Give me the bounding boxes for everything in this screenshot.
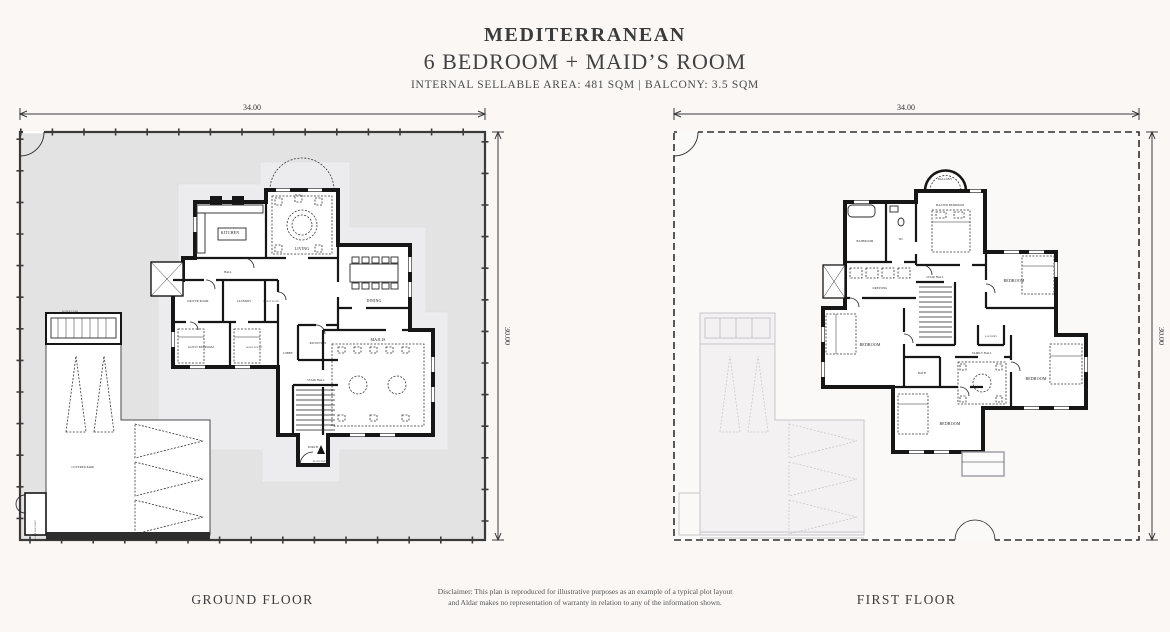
room-label-laundry: LAUNDRY [237, 300, 252, 303]
ground-height-dim: 30.00 [503, 327, 510, 345]
room-label-first-stair: STAIR HALL [926, 276, 944, 279]
room-label-hall: HALL [224, 271, 232, 274]
first-width-dim: 34.00 [897, 103, 915, 112]
room-label-bedroom-a: BEDROOM [1003, 278, 1024, 283]
room-label-bath: BATH [918, 372, 926, 375]
room-label-living: LIVING [295, 246, 310, 251]
room-label-majlis: MAJLIS [371, 337, 386, 342]
room-label-covered-park: COVERED PARK [72, 466, 95, 469]
disclaimer: Disclaimer: This plan is reproduced for … [375, 587, 795, 608]
disclaimer-line1: Disclaimer: This plan is reproduced for … [375, 587, 795, 598]
title-block: MEDITERRANEAN 6 BEDROOM + MAID’S ROOM IN… [411, 24, 759, 91]
first-dim-top: 34.00 [674, 103, 1139, 120]
plan-title: MEDITERRANEAN [411, 24, 759, 47]
floorplan-sheet: { "header": { "title": "MEDITERRANEAN", … [0, 0, 1170, 632]
room-label-dressing: DRESSING [873, 287, 888, 290]
first-floor-plan: 34.00 30.00 [662, 100, 1164, 552]
room-label-lobby: LOBBY [283, 352, 293, 355]
room-label-master: MASTER BEDROOM [936, 204, 964, 207]
first-floor-panel: 34.00 30.00 [662, 100, 1170, 600]
room-label-main-entry: MAIN ENTRY [313, 460, 329, 463]
plan-subtitle: 6 BEDROOM + MAID’S ROOM [411, 49, 759, 75]
room-label-dining: DINING [366, 298, 381, 303]
room-label-kitchen: KITCHEN [221, 230, 240, 235]
room-label-garbage: GARBAGE UNIT [34, 520, 37, 540]
ground-floor-plan: 34.00 30.00 WATER TANK [8, 100, 510, 552]
ground-plot: WATER TANK COVERED PARK GARBAGE UNIT [16, 132, 485, 540]
ground-floor-panel: 34.00 30.00 WATER TANK [8, 100, 518, 600]
room-label-bathroom: BATHROOM [857, 240, 874, 243]
terrace-below [962, 452, 1004, 476]
room-label-family: FAMILY HALL [972, 352, 992, 355]
room-label-bedroom-c: BEDROOM [939, 421, 960, 426]
ground-width-dim: 34.00 [243, 103, 261, 112]
room-label-balcony: BALCONY [938, 178, 953, 181]
room-label-first-laundry: LAUNDRY [985, 335, 998, 338]
room-label-bedroom-d: BEDROOM [1025, 376, 1046, 381]
room-label-reception: RECEPTION [310, 342, 327, 345]
plan-area-line: INTERNAL SELLABLE AREA: 481 SQM | BALCON… [411, 79, 759, 91]
room-label-guest-bath: GUEST BATH [263, 300, 279, 303]
first-dim-right: 30.00 [1146, 132, 1164, 540]
ground-dim-top: 34.00 [20, 103, 485, 120]
room-label-porch: PORCH [308, 446, 318, 449]
room-label-wc: WC [899, 238, 904, 241]
disclaimer-line2: and Aldar makes no representation of war… [375, 598, 795, 609]
first-plot: BALCONY MASTER BEDROOM BATHROOM WC DRESS… [674, 132, 1139, 540]
first-height-dim: 30.00 [1157, 327, 1164, 345]
room-label-guest-bedroom: GUEST BEDROOM [188, 346, 214, 349]
ground-dim-right: 30.00 [492, 132, 510, 540]
driveway-entry [46, 532, 210, 540]
room-label-water-tank: WATER TANK [62, 310, 79, 313]
room-label-stair: STAIR HALL [307, 379, 325, 382]
room-label-driver: DRIVER ROOM [187, 300, 209, 303]
room-label-bedroom-b: BEDROOM [859, 342, 880, 347]
room-label-maid: MAID ROOM [246, 346, 262, 349]
